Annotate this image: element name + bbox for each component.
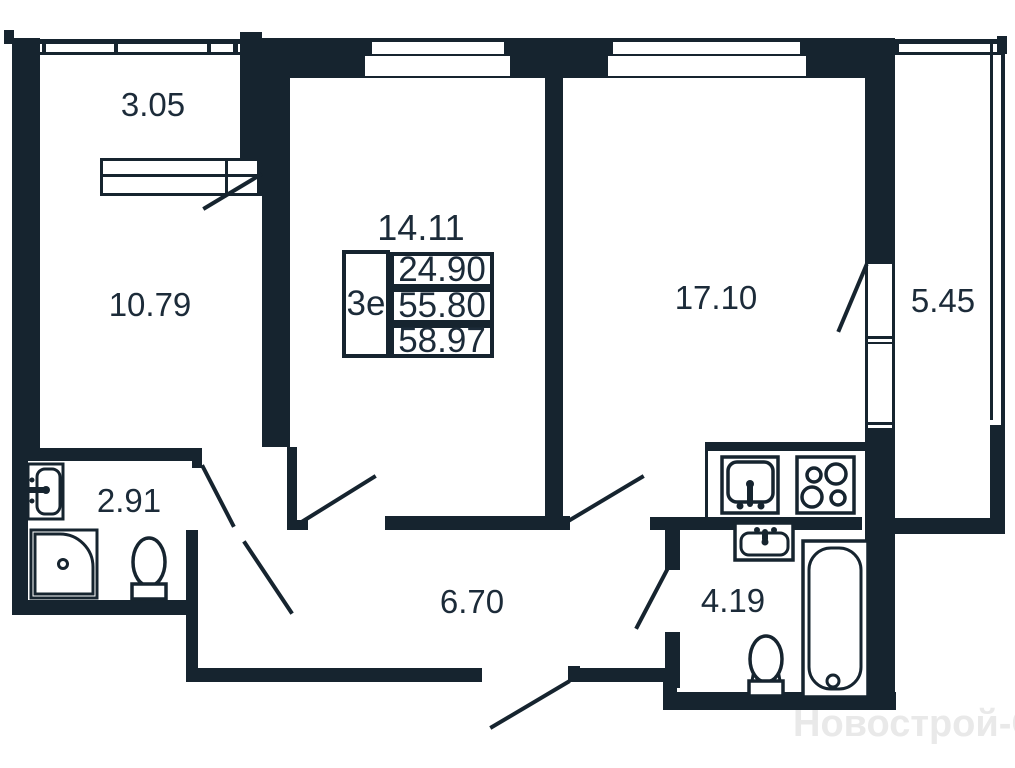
room-label-hallway: 6.70 bbox=[410, 585, 534, 618]
washbasin-icon bbox=[28, 464, 63, 519]
washbasin-icon bbox=[735, 523, 793, 560]
door-swing-kitchen bbox=[570, 477, 642, 520]
room-label-bathroom-small: 2.91 bbox=[77, 484, 181, 517]
floor-plan: Новострой-СПб bbox=[0, 0, 1015, 768]
room-label-living-room: 14.11 bbox=[361, 210, 481, 246]
door-swing-bedroom bbox=[245, 543, 291, 612]
room-label-balcony-left: 3.05 bbox=[100, 88, 206, 121]
door-swing-bathroom-small bbox=[203, 467, 233, 525]
toilet-icon bbox=[132, 538, 166, 599]
area-total-cell: 58.97 bbox=[390, 324, 494, 358]
door-swing-balcony-right bbox=[839, 266, 866, 330]
room-label-bathroom-large: 4.19 bbox=[671, 584, 795, 617]
door-swing-balcony-left bbox=[205, 175, 260, 208]
door-swing-living-room bbox=[300, 477, 374, 523]
area-no-balcony-cell: 55.80 bbox=[390, 288, 494, 324]
bathtub-icon bbox=[803, 541, 868, 697]
stove-icon bbox=[797, 457, 854, 513]
room-label-kitchen-living: 17.10 bbox=[654, 281, 778, 314]
room-label-balcony-right: 5.45 bbox=[901, 284, 985, 317]
door-swing-bathroom-large bbox=[637, 570, 667, 627]
area-living-cell: 24.90 bbox=[390, 252, 494, 288]
room-label-bedroom: 10.79 bbox=[90, 288, 210, 321]
door-swing-entrance bbox=[492, 682, 568, 727]
shower-tray-icon bbox=[31, 530, 97, 598]
unit-type-cell: 3е bbox=[342, 250, 390, 358]
kitchen-sink-icon bbox=[722, 457, 778, 513]
toilet-icon bbox=[749, 636, 783, 696]
